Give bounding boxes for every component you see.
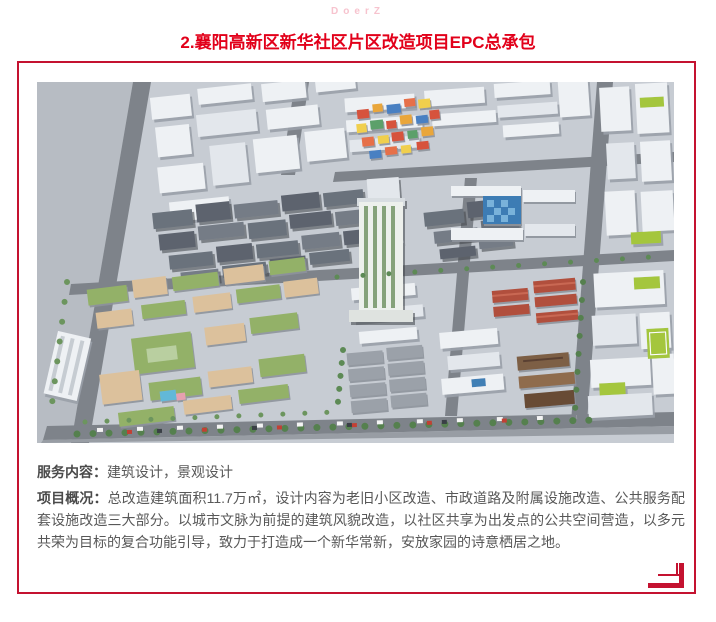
project-overview-line: 项目概况：总改造建筑面积11.7万㎡，设计内容为老旧小区改造、市政道路及附属设施… xyxy=(37,487,685,553)
service-content-label: 服务内容： xyxy=(37,464,107,480)
project-aerial-render xyxy=(37,82,674,443)
brown-factory-buildings xyxy=(517,352,577,409)
corner-logo-mark xyxy=(642,554,690,594)
project-details: 服务内容：建筑设计，景观设计 项目概况：总改造建筑面积11.7万㎡，设计内容为老… xyxy=(37,461,685,553)
service-content-line: 服务内容：建筑设计，景观设计 xyxy=(37,461,685,483)
project-overview-label: 项目概况： xyxy=(37,490,108,506)
brand-watermark: DoerZ xyxy=(0,6,716,17)
service-content-value: 建筑设计，景观设计 xyxy=(107,464,233,480)
aerial-render-scene xyxy=(37,82,674,443)
project-overview-value: 总改造建筑面积11.7万㎡，设计内容为老旧小区改造、市政道路及附属设施改造、公共… xyxy=(37,490,685,550)
page-title: 2.襄阳高新区新华社区片区改造项目EPC总承包 xyxy=(0,28,716,53)
